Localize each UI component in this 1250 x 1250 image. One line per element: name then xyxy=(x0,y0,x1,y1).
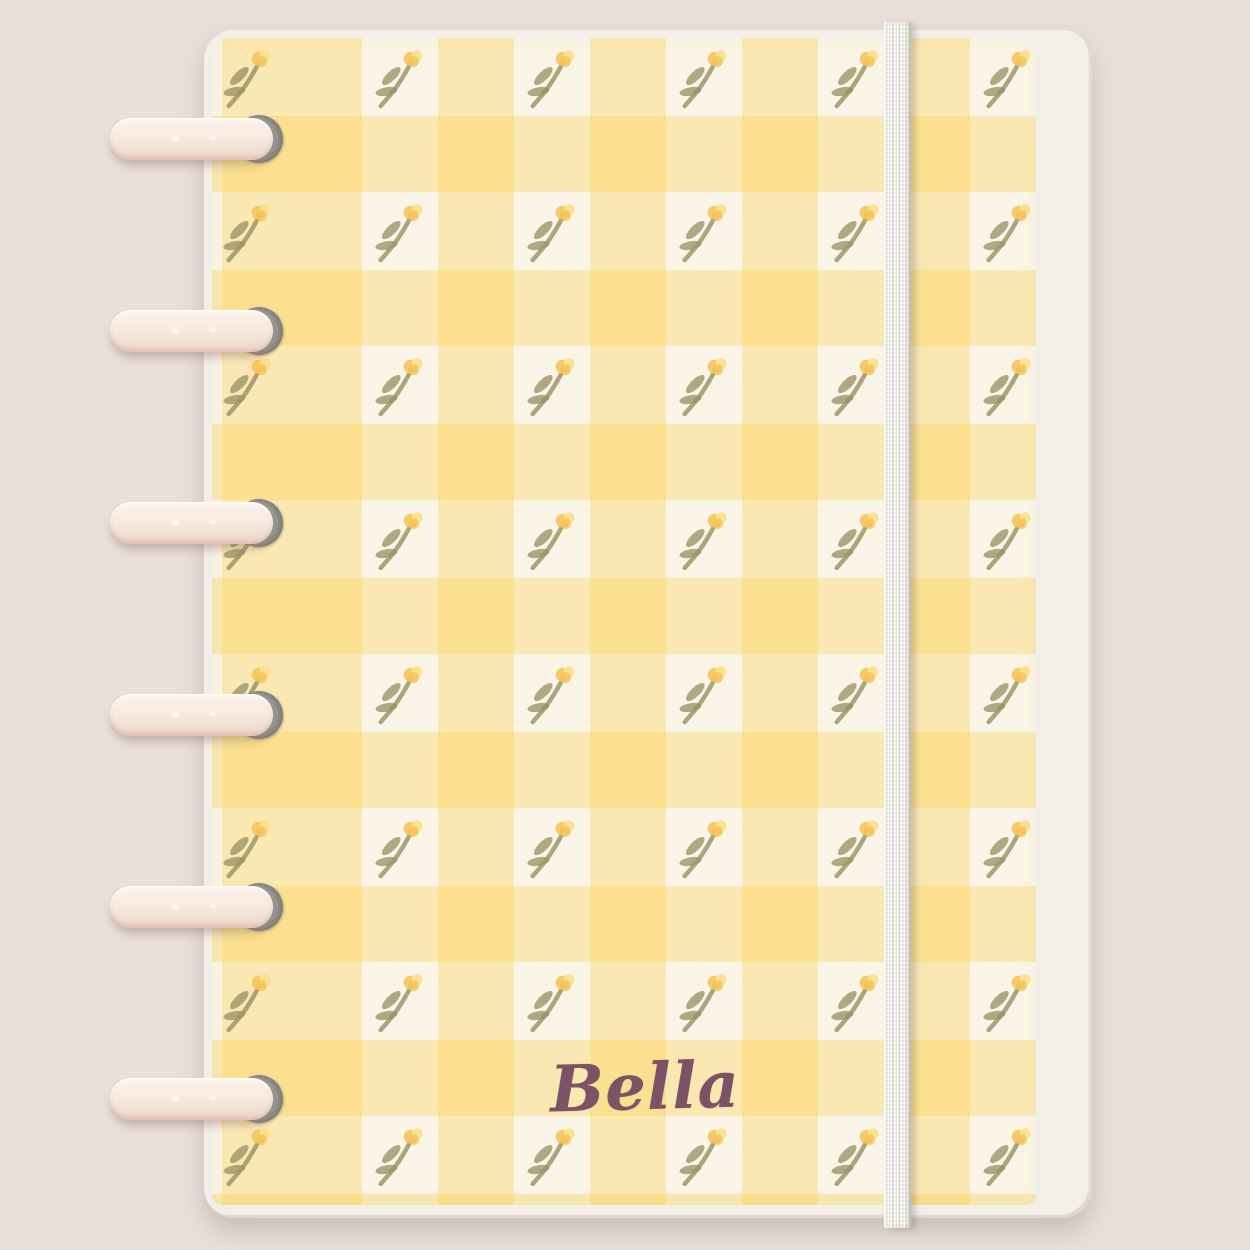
tulip-flower-icon xyxy=(979,200,1036,264)
tulip-flower-icon xyxy=(219,46,277,110)
tulip-flower-icon xyxy=(371,354,429,418)
tulip-flower-icon xyxy=(219,354,277,418)
elastic-band xyxy=(884,22,911,1228)
binding-disc xyxy=(110,310,273,352)
product-photo: Bella xyxy=(0,0,1250,1250)
tulip-flower-icon xyxy=(219,970,277,1034)
tulip-flower-icon xyxy=(523,354,581,418)
tulip-flower-icon xyxy=(523,508,581,572)
tulip-flower-icon xyxy=(979,662,1036,726)
tulip-flower-icon xyxy=(675,816,733,880)
tulip-flower-icon xyxy=(675,970,733,1034)
tulip-flower-icon xyxy=(827,662,885,726)
tulip-flower-icon xyxy=(675,354,733,418)
tulip-flower-icon xyxy=(675,200,733,264)
tulip-flower-icon xyxy=(219,816,277,880)
tulip-flower-icon xyxy=(675,1124,733,1188)
tulip-flower-icon xyxy=(523,46,581,110)
monogram-text: Bella xyxy=(494,1046,796,1131)
tulip-flower-icon xyxy=(827,46,885,110)
tulip-flower-icon xyxy=(523,970,581,1034)
tulip-flower-icon xyxy=(523,1124,581,1188)
tulip-flower-icon xyxy=(827,1124,885,1188)
notebook-cover: Bella xyxy=(212,38,1036,1205)
tulip-flower-icon xyxy=(371,662,429,726)
tulip-flower-icon xyxy=(979,816,1036,880)
tulip-flower-icon xyxy=(827,508,885,572)
tulip-flower-icon xyxy=(979,1124,1036,1188)
tulip-flower-icon xyxy=(523,816,581,880)
tulip-flower-icon xyxy=(979,354,1036,418)
binding-disc xyxy=(110,118,273,160)
tulip-flower-icon xyxy=(371,970,429,1034)
tulip-flower-icon xyxy=(979,46,1036,110)
tulip-flower-icon xyxy=(827,816,885,880)
tulip-flower-icon xyxy=(523,200,581,264)
tulip-flower-icon xyxy=(675,46,733,110)
tulip-flower-icon xyxy=(371,816,429,880)
tulip-flower-icon xyxy=(675,508,733,572)
tulip-flower-icon xyxy=(979,508,1036,572)
tulip-flower-icon xyxy=(827,354,885,418)
binding-disc xyxy=(110,694,273,736)
binding-disc xyxy=(110,1078,273,1120)
tulip-flower-icon xyxy=(219,200,277,264)
tulip-flower-icon xyxy=(827,200,885,264)
tulip-flower-icon xyxy=(371,46,429,110)
tulip-flower-icon xyxy=(979,970,1036,1034)
tulip-flower-icon xyxy=(827,970,885,1034)
tulip-flower-icon xyxy=(219,1124,277,1188)
tulip-flower-icon xyxy=(371,200,429,264)
tulip-flower-icon xyxy=(523,662,581,726)
tulip-flower-icon xyxy=(371,508,429,572)
binding-disc xyxy=(110,886,273,928)
tulip-flower-icon xyxy=(675,662,733,726)
binding-disc xyxy=(110,502,273,544)
tulip-flower-icon xyxy=(371,1124,429,1188)
gingham-pattern xyxy=(212,38,1036,1205)
